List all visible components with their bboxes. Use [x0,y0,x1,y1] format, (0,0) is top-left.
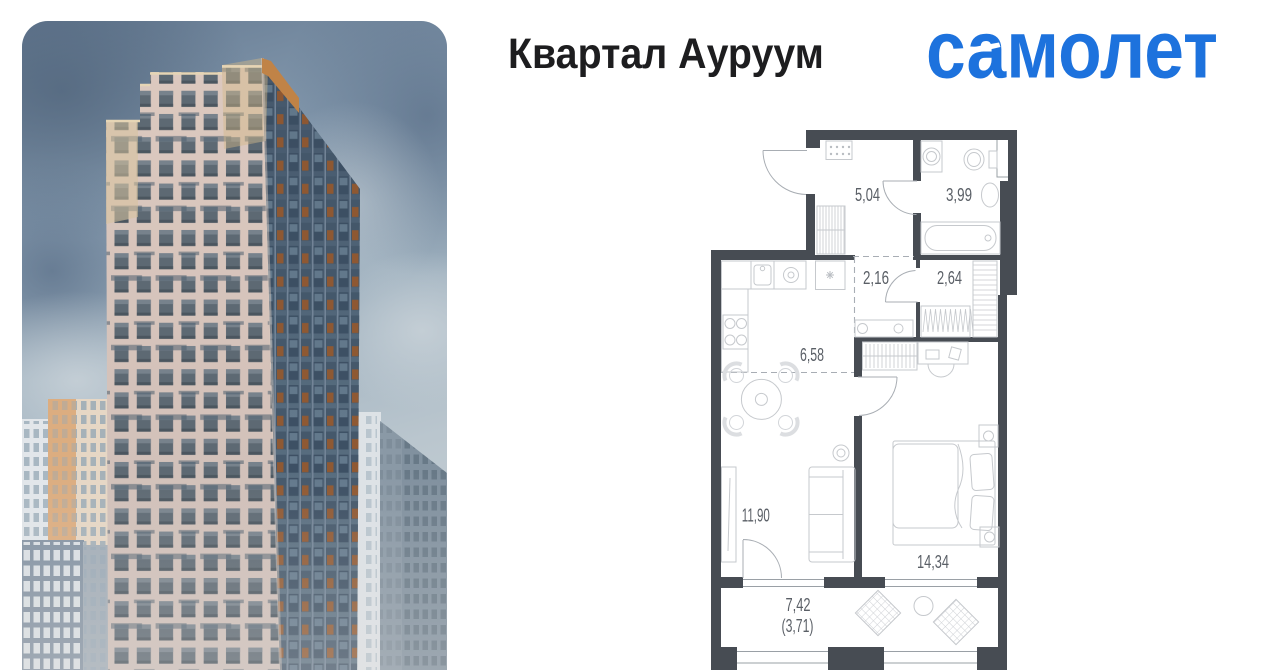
svg-text:(3,71): (3,71) [782,616,814,636]
svg-text:2,64: 2,64 [937,268,962,288]
svg-text:14,34: 14,34 [917,552,949,572]
svg-text:5,04: 5,04 [855,185,880,205]
svg-text:11,90: 11,90 [742,506,770,526]
svg-text:2,16: 2,16 [863,268,889,288]
svg-text:3,99: 3,99 [946,185,972,205]
svg-text:7,42: 7,42 [786,595,811,615]
svg-text:6,58: 6,58 [800,345,824,365]
